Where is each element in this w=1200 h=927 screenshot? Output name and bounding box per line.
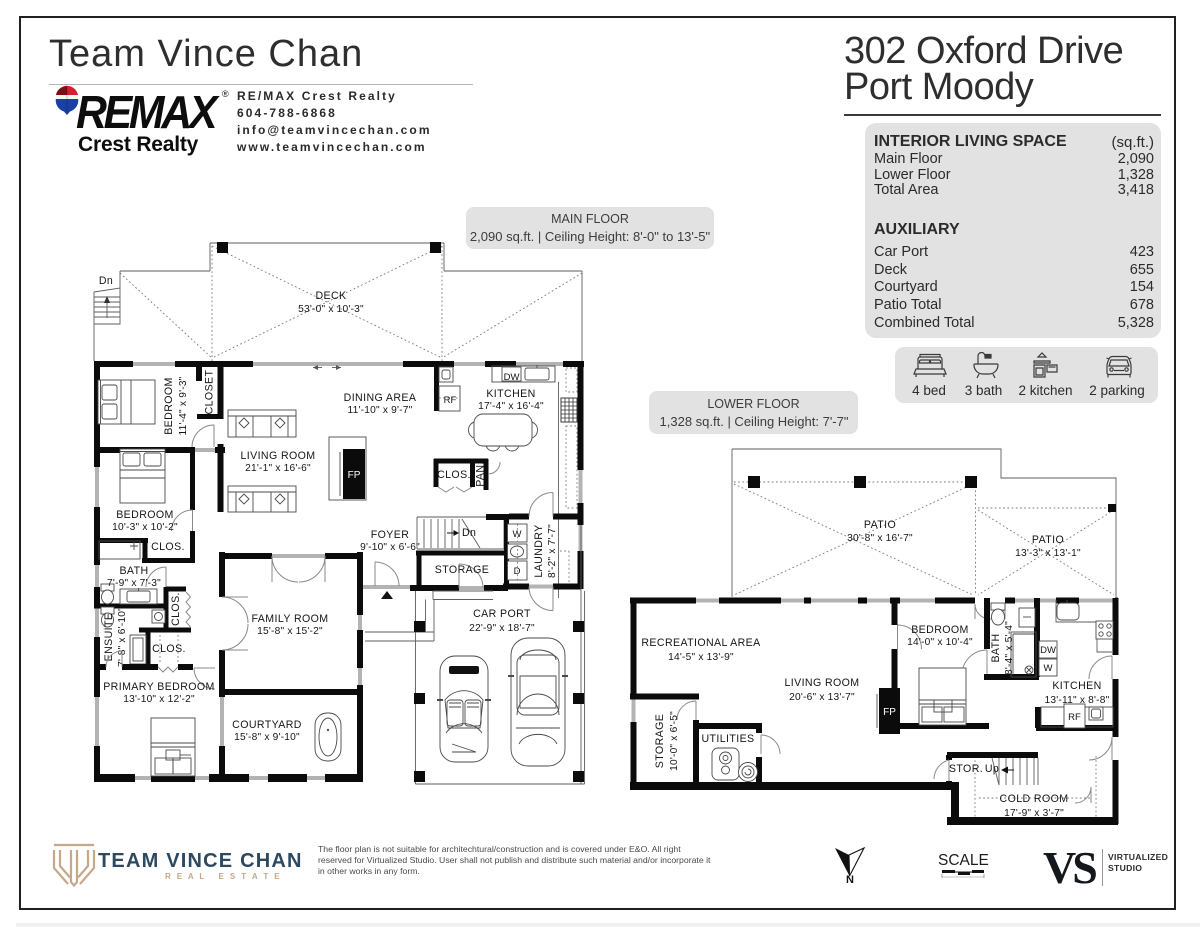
- svg-text:8'-4" x 5'-4": 8'-4" x 5'-4": [1004, 621, 1015, 675]
- svg-text:13'-10" x 12'-2": 13'-10" x 12'-2": [123, 694, 195, 705]
- svg-text:13'-3" x 13'-1": 13'-3" x 13'-1": [1015, 548, 1081, 559]
- svg-text:PRIMARY BEDROOM: PRIMARY BEDROOM: [103, 681, 215, 693]
- svg-text:20'-6" x 13'-7": 20'-6" x 13'-7": [789, 692, 855, 703]
- svg-text:7'-9" x 7'-3": 7'-9" x 7'-3": [107, 578, 161, 589]
- svg-text:COURTYARD: COURTYARD: [232, 719, 302, 731]
- svg-text:STOR.: STOR.: [949, 763, 983, 775]
- svg-text:CLOS.: CLOS.: [152, 643, 186, 655]
- svg-text:FP: FP: [348, 470, 361, 481]
- svg-text:21'-1" x 16'-6": 21'-1" x 16'-6": [245, 463, 311, 474]
- svg-text:CAR PORT: CAR PORT: [473, 608, 531, 620]
- svg-text:W: W: [513, 529, 522, 540]
- svg-text:UTILITIES: UTILITIES: [701, 733, 754, 745]
- svg-text:DINING AREA: DINING AREA: [344, 392, 417, 404]
- svg-text:8'-2" x 7'-7": 8'-2" x 7'-7": [547, 524, 558, 578]
- svg-text:KITCHEN: KITCHEN: [1052, 680, 1101, 692]
- svg-text:LAUNDRY: LAUNDRY: [533, 524, 545, 577]
- svg-text:BATH: BATH: [119, 565, 148, 577]
- svg-text:COLD ROOM: COLD ROOM: [1000, 793, 1069, 805]
- svg-text:Dn: Dn: [462, 527, 476, 539]
- svg-text:30'-8" x 16'-7": 30'-8" x 16'-7": [847, 533, 913, 544]
- svg-text:DW: DW: [504, 372, 520, 383]
- svg-text:RF: RF: [444, 395, 457, 406]
- svg-text:RF: RF: [1068, 712, 1081, 723]
- svg-text:DW: DW: [1040, 645, 1056, 656]
- svg-text:BATH: BATH: [990, 633, 1002, 662]
- svg-text:17'-4" x 16'-4": 17'-4" x 16'-4": [478, 401, 544, 412]
- svg-text:9'-10" x 6'-6": 9'-10" x 6'-6": [360, 542, 420, 553]
- svg-text:BEDROOM: BEDROOM: [163, 377, 175, 435]
- svg-text:LIVING ROOM: LIVING ROOM: [784, 677, 859, 689]
- svg-text:STORAGE: STORAGE: [435, 564, 489, 576]
- svg-text:KITCHEN: KITCHEN: [486, 388, 535, 400]
- svg-text:RECREATIONAL AREA: RECREATIONAL AREA: [641, 637, 761, 649]
- svg-text:PAN.: PAN.: [475, 461, 487, 487]
- svg-text:10'-3" x 10'-2": 10'-3" x 10'-2": [112, 522, 178, 533]
- svg-text:FP: FP: [883, 707, 896, 718]
- svg-text:15'-8" x 15'-2": 15'-8" x 15'-2": [257, 626, 323, 637]
- svg-text:Up: Up: [985, 763, 999, 775]
- svg-text:LIVING ROOM: LIVING ROOM: [240, 450, 315, 462]
- svg-text:STORAGE: STORAGE: [654, 714, 666, 768]
- svg-text:14'-0" x 10'-4": 14'-0" x 10'-4": [907, 637, 973, 648]
- svg-text:15'-8" x 9'-10": 15'-8" x 9'-10": [234, 732, 300, 743]
- svg-text:DECK: DECK: [315, 290, 346, 302]
- svg-text:FOYER: FOYER: [371, 529, 410, 541]
- svg-text:CLOS.: CLOS.: [437, 469, 471, 481]
- svg-text:17'-9" x 3'-7": 17'-9" x 3'-7": [1004, 808, 1064, 819]
- svg-text:53'-0" x 10'-3": 53'-0" x 10'-3": [298, 304, 364, 315]
- svg-text:FAMILY ROOM: FAMILY ROOM: [252, 613, 329, 625]
- svg-text:PATIO: PATIO: [864, 519, 896, 531]
- svg-text:W: W: [1044, 663, 1053, 674]
- svg-text:BEDROOM: BEDROOM: [116, 509, 174, 521]
- svg-text:CLOS.: CLOS.: [151, 541, 185, 553]
- svg-text:CLOS.: CLOS.: [170, 592, 182, 626]
- svg-text:11'-10" x 9'-7": 11'-10" x 9'-7": [348, 405, 413, 416]
- svg-text:BEDROOM: BEDROOM: [911, 624, 969, 636]
- svg-text:10'-0" x 6'-5": 10'-0" x 6'-5": [669, 711, 680, 771]
- svg-text:Dn: Dn: [99, 275, 113, 287]
- svg-text:PATIO: PATIO: [1032, 534, 1064, 546]
- svg-text:CLOSET: CLOSET: [204, 369, 216, 414]
- svg-text:11'-4" x 9'-3": 11'-4" x 9'-3": [178, 376, 189, 435]
- svg-text:22'-9" x 18'-7": 22'-9" x 18'-7": [469, 623, 535, 634]
- svg-text:14'-5" x 13'-9": 14'-5" x 13'-9": [668, 652, 734, 663]
